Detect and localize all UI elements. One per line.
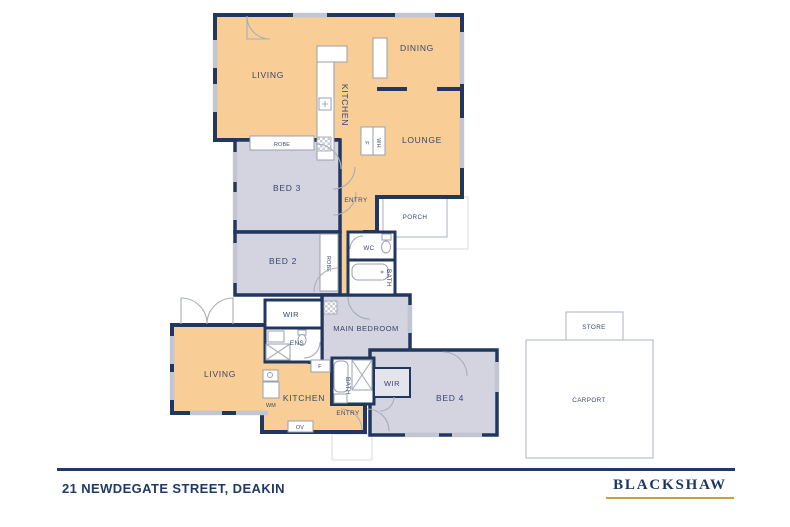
fridge2-box: F (311, 360, 330, 372)
toilet-icon (382, 234, 392, 253)
living1-label: LIVING (252, 70, 284, 80)
bed3-label: BED 3 (273, 183, 301, 193)
entry-step (332, 434, 372, 460)
cooktop-icon (319, 98, 331, 110)
fridge1-label: F (363, 141, 369, 145)
footer-divider-line (57, 468, 735, 471)
room-ens: ENS (265, 328, 322, 362)
laundry-sink (263, 370, 278, 381)
brand-logo: BLACKSHAW (606, 477, 734, 499)
water-heater-label: WH (375, 138, 381, 147)
address-text: 21 NEWDEGATE STREET, DEAKIN (62, 481, 285, 496)
robe1-cupboard: ROBE (250, 136, 314, 150)
shower-icon (352, 360, 372, 390)
lounge-label: LOUNGE (402, 135, 442, 145)
main-bedroom-label: MAIN BEDROOM (333, 324, 399, 333)
robe1-label: ROBE (274, 142, 290, 148)
fridge-box: F (361, 127, 373, 155)
room-wir1: WIR (265, 300, 322, 328)
vanity-icon (268, 331, 284, 342)
wir1-label: WIR (283, 310, 299, 319)
wir2-label: WIR (384, 379, 400, 388)
store-area: STORE (566, 312, 623, 342)
carport-label: CARPORT (572, 397, 605, 404)
store-label: STORE (582, 324, 606, 331)
island-bench (373, 38, 387, 78)
washing-machine-label: WM (266, 403, 276, 409)
entry1-label: ENTRY (344, 197, 368, 204)
floor-plan: PORCH STORE CARPORT BED 3 BED 2 MAIN BED… (0, 0, 790, 527)
kitchen1-label: KITCHEN (340, 84, 350, 126)
shower-icon (266, 344, 290, 360)
room-bath2: BATH (332, 358, 374, 404)
bath2-label: BATH (344, 377, 351, 395)
robe2-cupboard: ROBE (320, 234, 338, 291)
carport-area: CARPORT (526, 340, 653, 458)
living2-label: LIVING (204, 369, 236, 379)
room-bath1: BATH (348, 260, 395, 295)
kitchen2-label: KITCHEN (283, 393, 325, 403)
bath-drain-icon (381, 271, 384, 274)
bed2-label: BED 2 (269, 256, 297, 266)
oven-box: OV (288, 421, 313, 432)
dining-label: DINING (400, 43, 434, 53)
vanity-icon (334, 394, 347, 403)
oven-label: OV (296, 425, 304, 431)
bath1-label: BATH (385, 269, 392, 287)
wc-label: WC (363, 245, 374, 252)
floor-plan-page: PORCH STORE CARPORT BED 3 BED 2 MAIN BED… (0, 0, 790, 527)
linen-cupboard-icon (324, 301, 337, 314)
porch-label: PORCH (403, 214, 428, 221)
entry2-label: ENTRY (336, 410, 360, 417)
room-wir2: WIR (374, 368, 410, 397)
ens-label: ENS (290, 340, 304, 347)
fridge2-label: F (318, 364, 322, 370)
water-heater-box: WH (373, 127, 385, 155)
bed4-label: BED 4 (436, 393, 464, 403)
